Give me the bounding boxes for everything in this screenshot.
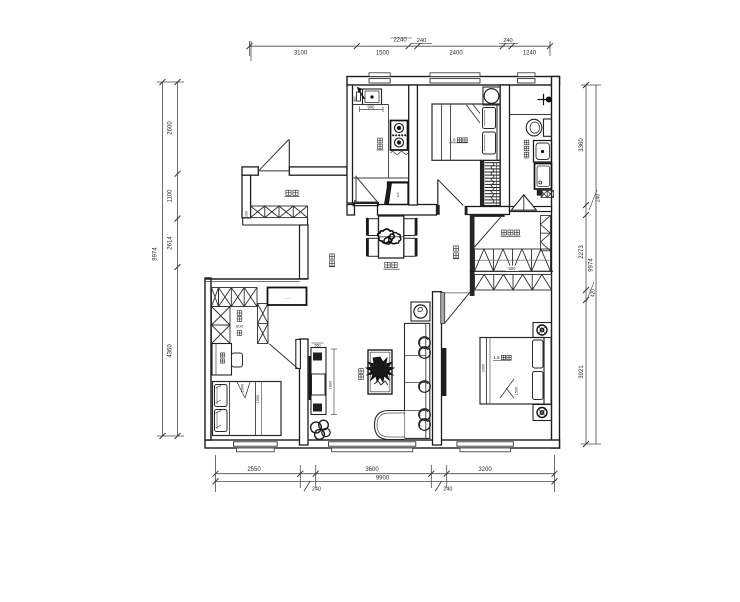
svg-text:4360: 4360 xyxy=(168,344,174,358)
svg-text:9974: 9974 xyxy=(589,258,595,272)
svg-text:240: 240 xyxy=(443,487,452,493)
svg-text:240: 240 xyxy=(503,38,512,44)
svg-text:600: 600 xyxy=(236,324,243,329)
svg-text:2273: 2273 xyxy=(579,245,585,259)
svg-text:420: 420 xyxy=(591,289,597,298)
svg-text:2000: 2000 xyxy=(482,364,486,372)
svg-text:3200: 3200 xyxy=(478,467,492,473)
svg-text:. . .: . . . xyxy=(284,295,291,301)
svg-text:1.8: 1.8 xyxy=(493,355,500,360)
svg-text:9974: 9974 xyxy=(153,247,159,261)
svg-text:1: 1 xyxy=(397,193,400,199)
svg-text:9900: 9900 xyxy=(376,476,390,482)
svg-text:2550: 2550 xyxy=(247,467,261,473)
svg-text:240: 240 xyxy=(596,194,602,203)
svg-text:1500: 1500 xyxy=(376,51,390,57)
svg-text:1500: 1500 xyxy=(515,387,519,395)
svg-text:240: 240 xyxy=(417,38,426,44)
svg-text:3921: 3921 xyxy=(579,365,585,379)
svg-text:1.8: 1.8 xyxy=(449,138,456,143)
svg-text:2000: 2000 xyxy=(241,384,245,392)
svg-text:2240: 2240 xyxy=(393,38,407,44)
svg-text:3360: 3360 xyxy=(579,138,585,152)
svg-text:1800: 1800 xyxy=(329,381,333,389)
svg-text:1240: 1240 xyxy=(523,51,537,57)
svg-text:550: 550 xyxy=(314,343,320,347)
svg-text:1500: 1500 xyxy=(256,395,260,403)
svg-text:600: 600 xyxy=(509,266,517,271)
svg-text:3600: 3600 xyxy=(365,467,379,473)
svg-text:240: 240 xyxy=(312,487,321,493)
svg-text:1100: 1100 xyxy=(168,189,174,203)
svg-text:3100: 3100 xyxy=(294,51,308,57)
svg-text:900: 900 xyxy=(368,104,376,109)
svg-text:2600: 2600 xyxy=(168,121,174,135)
svg-text:200: 200 xyxy=(245,211,249,217)
svg-text:460: 460 xyxy=(353,96,357,102)
svg-text:2614: 2614 xyxy=(168,236,174,250)
svg-text:2400: 2400 xyxy=(449,51,463,57)
